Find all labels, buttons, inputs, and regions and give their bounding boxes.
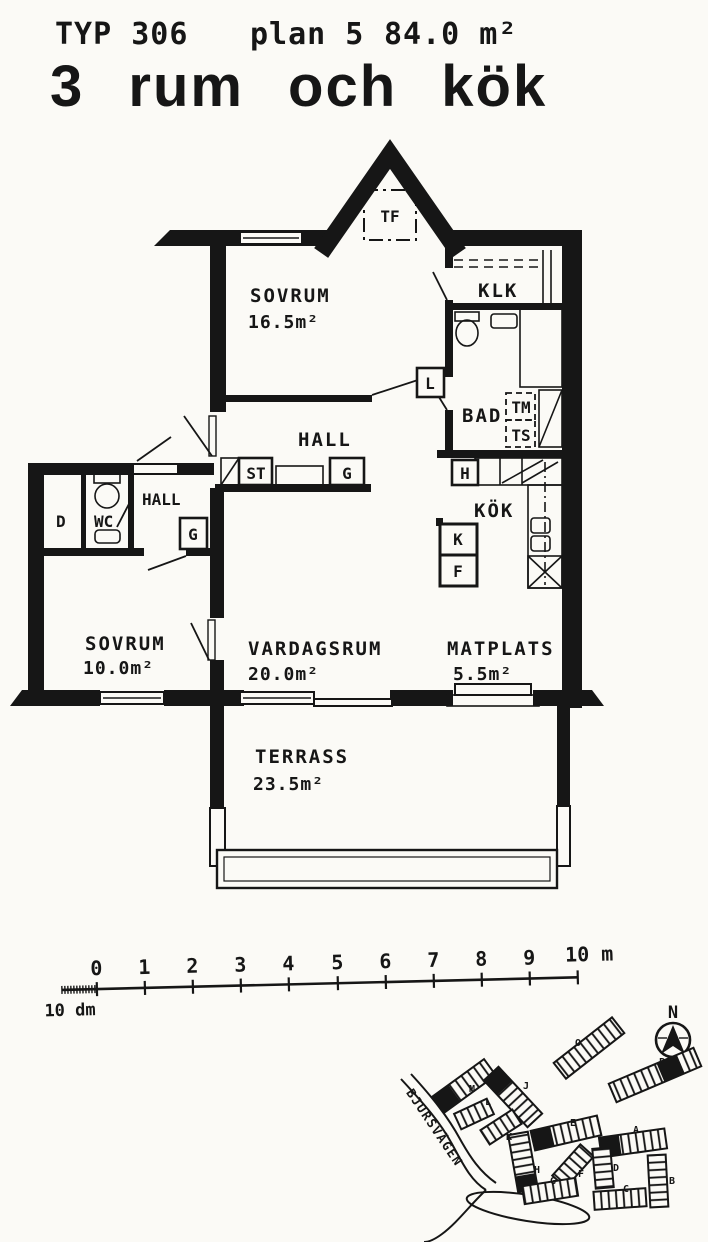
room-label-wc: WC (94, 512, 113, 531)
scale-tick-7: 7 (427, 948, 440, 972)
label-tf: TF (380, 207, 399, 226)
kitchen-counter-top (475, 458, 562, 485)
label-g-entry: G (188, 525, 198, 544)
type-label: TYP 306 (55, 17, 188, 52)
floor-plan-drawing: TYP 306 plan 5 84.0 m² 3 rum och kök (0, 0, 708, 1242)
label-g-hall: G (342, 464, 352, 483)
scale-numbers: 0 1 2 3 4 5 6 7 8 9 10 m (90, 941, 614, 980)
terrace-railing (217, 850, 557, 888)
scale-tick-3: 3 (234, 952, 247, 976)
terrace-post-right (557, 806, 570, 866)
site-building-P (609, 1048, 702, 1102)
scale-tick-9: 9 (523, 945, 536, 969)
site-plan: BJURSVÄGEN N O (401, 1003, 701, 1242)
site-building-B (648, 1155, 669, 1208)
area-label-matplats: 5.5m² (453, 664, 512, 685)
area-label-terrass: 23.5m² (253, 774, 324, 795)
room-label-sovrum-small: SOVRUM (85, 633, 166, 655)
north-label: N (668, 1003, 678, 1023)
scale-sub-label: 10 dm (44, 1000, 96, 1021)
windows (100, 232, 570, 866)
site-letter-L: L (485, 1097, 491, 1108)
site-letter-O: O (575, 1038, 581, 1049)
site-letter-D: D (613, 1163, 619, 1174)
site-letter-B: B (669, 1176, 675, 1187)
site-letter-H: H (534, 1165, 540, 1176)
site-letter-E: E (570, 1118, 576, 1129)
sink-bad (491, 314, 517, 328)
site-buildings (432, 1017, 701, 1209)
hall-low-cabinet (276, 466, 323, 485)
bay-roof-wall (326, 154, 454, 246)
room-label-bad: BAD (462, 405, 502, 427)
kitchen-sink (531, 518, 550, 533)
door-sovrum-small (148, 556, 186, 570)
scale-bar: 0 1 2 3 4 5 6 7 8 9 10 m 10 dm (43, 941, 615, 1021)
room-label-matplats: MATPLATS (447, 638, 555, 660)
room-label-hall-entry: HALL (142, 490, 181, 509)
street-bjursvagen (401, 1074, 591, 1242)
fixture-labels: TF L TM TS ST G H K F G (188, 207, 530, 581)
door-matplats-terrass (455, 684, 531, 695)
area-label: 84.0 m² (384, 17, 517, 52)
area-label-sovrum-main: 16.5m² (248, 312, 319, 333)
door-klk (433, 272, 447, 300)
area-label-vardagsrum: 20.0m² (248, 664, 319, 685)
floor-plan-page: TYP 306 plan 5 84.0 m² 3 rum och kök (0, 0, 708, 1242)
label-st: ST (246, 464, 265, 483)
page-title: 3 rum och kök (50, 54, 547, 119)
door-sovrum-main (372, 379, 421, 395)
entrance-door-leaf (209, 416, 216, 456)
area-label-sovrum-small: 10.0m² (83, 658, 154, 679)
room-label-klk: KLK (478, 280, 518, 302)
scale-tick-1: 1 (138, 955, 151, 979)
scale-tick-6: 6 (379, 949, 392, 973)
room-label-vardagsrum: VARDAGSRUM (248, 638, 382, 660)
window-entry-hall (133, 464, 178, 474)
site-letter-M: M (469, 1084, 475, 1095)
scale-end-label: 10 m (565, 941, 614, 966)
scale-tick-8: 8 (475, 947, 488, 971)
scale-tick-0: 0 (90, 956, 103, 980)
header: TYP 306 plan 5 84.0 m² 3 rum och kök (50, 17, 547, 119)
toilet-wc (94, 474, 120, 483)
label-k: K (453, 530, 463, 549)
plan-label: plan 5 (250, 17, 364, 52)
site-letter-J: J (523, 1081, 529, 1092)
site-building-E (531, 1116, 602, 1151)
room-label-kok: KÖK (474, 498, 514, 522)
scale-tick-2: 2 (186, 954, 199, 978)
sliding-door-terrass (314, 699, 392, 706)
site-letter-C: C (623, 1184, 629, 1195)
north-arrow: N (656, 1003, 690, 1057)
label-f: F (453, 562, 463, 581)
room-label-dusch: D (56, 512, 66, 531)
site-letter-A: A (633, 1125, 639, 1136)
label-h: H (460, 464, 470, 483)
room-label-sovrum-main: SOVRUM (250, 285, 331, 307)
site-letter-G: G (550, 1176, 556, 1187)
site-building-C (593, 1188, 646, 1210)
room-label-terrass: TERRASS (255, 746, 349, 768)
room-label-hall-main: HALL (298, 429, 352, 451)
scale-tick-4: 4 (282, 951, 295, 975)
site-letter-F: F (578, 1169, 584, 1180)
label-l: L (425, 374, 435, 393)
apartment-plan: SOVRUM 16.5m² KLK BAD HALL KÖK HALL WC D… (10, 154, 604, 888)
scale-tick-5: 5 (331, 950, 344, 974)
door-vardagsrum-leaf (208, 620, 215, 660)
site-letter-P: P (659, 1057, 665, 1068)
site-building-D (592, 1147, 613, 1188)
site-building-O (554, 1017, 625, 1078)
label-ts: TS (511, 426, 530, 445)
site-letter-K: K (506, 1132, 512, 1143)
outer-walls (10, 154, 604, 808)
label-tm: TM (511, 398, 530, 417)
bathtub (520, 309, 562, 387)
sink-wc (95, 530, 120, 543)
